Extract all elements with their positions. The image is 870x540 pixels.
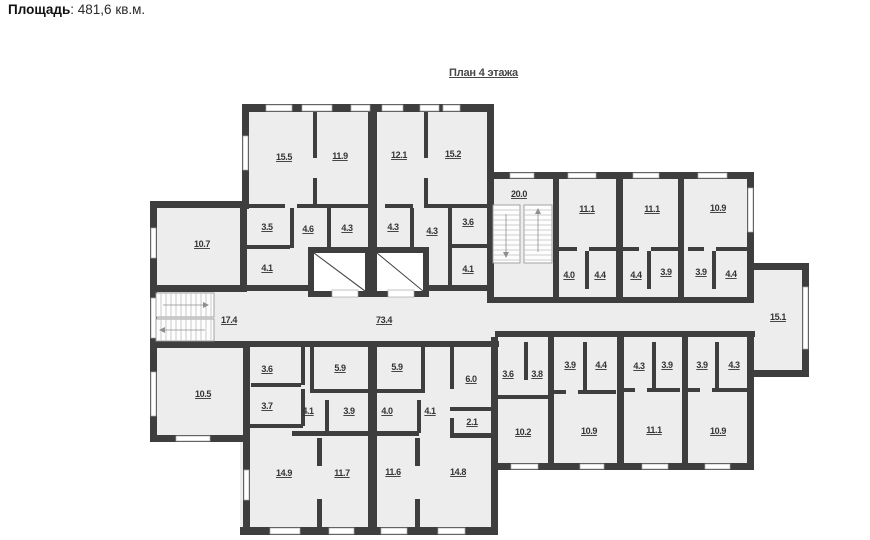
room-area-label: 4.1 (462, 264, 474, 274)
room-area-label: 4.6 (302, 224, 314, 234)
room-area-label: 3.9 (660, 267, 672, 277)
room-area-label: 3.6 (462, 217, 474, 227)
room-area-label: 10.9 (581, 426, 597, 436)
room-area-label: 3.5 (261, 222, 273, 232)
room-area-label: 11.1 (646, 425, 662, 435)
room-area-label: 5.9 (391, 362, 403, 372)
room-area-label: 4.0 (563, 270, 575, 280)
room-area-label: 10.9 (710, 203, 726, 213)
room-area-label: 2.1 (466, 417, 478, 427)
elevator-right-icon (371, 247, 429, 297)
room-area-label: 4.3 (728, 360, 740, 370)
room-area-label: 11.1 (644, 204, 660, 214)
room-area-label: 3.6 (261, 364, 273, 374)
room-area-label: 4.1 (302, 406, 314, 416)
room-area-label: 3.9 (564, 360, 576, 370)
staircase-left-icon (156, 293, 214, 341)
room-area-label: 3.7 (261, 401, 273, 411)
floor-plan-page: Площадь: 481,6 кв.м. План 4 этажа АРР (0, 0, 870, 540)
room-area-label: 4.1 (424, 406, 436, 416)
room-area-label: 4.4 (725, 269, 737, 279)
room-area-label: 73.4 (376, 315, 392, 325)
elevator-left-icon (308, 247, 371, 297)
room-area-label: 10.2 (515, 427, 531, 437)
room-area-label: 4.3 (387, 222, 399, 232)
room-area-label: 11.9 (332, 151, 348, 161)
room-area-label: 20.0 (511, 189, 527, 199)
room-area-label: 11.6 (385, 467, 401, 477)
room-area-label: 4.4 (630, 270, 642, 280)
room-area-label: 12.1 (391, 150, 407, 160)
room-area-label: 3.9 (661, 360, 673, 370)
room-area-label: 4.3 (633, 361, 645, 371)
room-area-label: 15.1 (770, 312, 786, 322)
room-area-label: 3.8 (531, 369, 543, 379)
room-area-label: 15.2 (445, 149, 461, 159)
floor-plan-drawing: АРР (0, 0, 870, 540)
room-area-label: 4.3 (341, 223, 353, 233)
room-area-label: 4.1 (261, 263, 273, 273)
room-area-label: 11.1 (579, 204, 595, 214)
room-area-label: 17.4 (221, 315, 237, 325)
room-area-label: 3.6 (502, 369, 514, 379)
room-area-label: 11.7 (334, 468, 350, 478)
room-area-label: 15.5 (276, 152, 292, 162)
room-area-label: 6.0 (465, 374, 477, 384)
room-area-label: 10.5 (195, 389, 211, 399)
room-area-label: 14.9 (276, 468, 292, 478)
room-area-label: 10.7 (194, 239, 210, 249)
room-area-label: 3.9 (696, 360, 708, 370)
room-area-label: 3.9 (343, 406, 355, 416)
room-area-label: 3.9 (695, 267, 707, 277)
room-area-label: 4.4 (594, 270, 606, 280)
room-area-label: 4.4 (595, 360, 607, 370)
room-area-label: 4.3 (426, 226, 438, 236)
room-area-label: 10.9 (710, 426, 726, 436)
room-area-label: 14.8 (450, 467, 466, 477)
room-area-label: 4.0 (381, 406, 393, 416)
room-area-label: 5.9 (334, 363, 346, 373)
